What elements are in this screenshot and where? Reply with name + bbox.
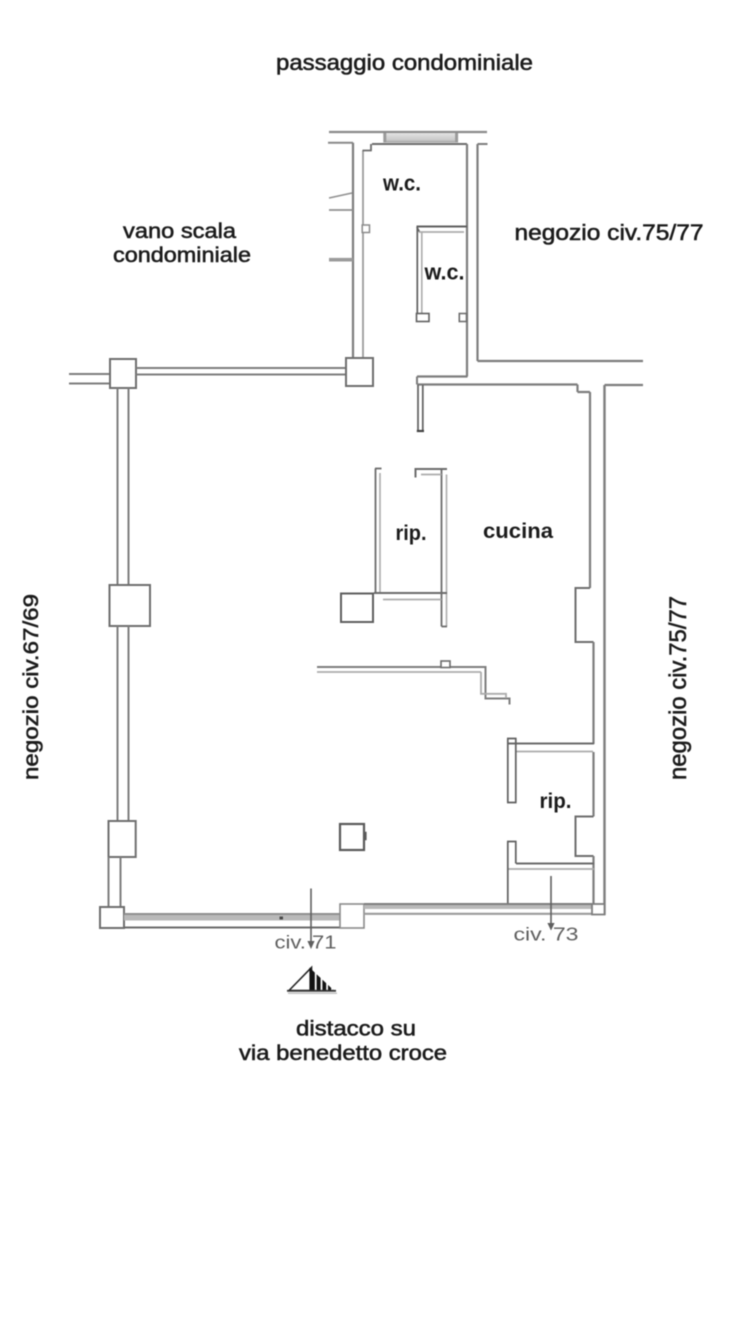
- svg-text:negozio civ.75/77: negozio civ.75/77: [515, 220, 704, 245]
- svg-text:cucina: cucina: [483, 520, 553, 543]
- svg-text:negozio civ.67/69: negozio civ.67/69: [19, 594, 43, 780]
- svg-text:civ. 71: civ. 71: [275, 933, 337, 953]
- svg-text:negozio civ.75/77: negozio civ.75/77: [665, 596, 692, 780]
- svg-text:w.c.: w.c.: [382, 171, 421, 196]
- svg-text:rip.: rip.: [540, 790, 572, 813]
- svg-text:distacco su: distacco su: [296, 1017, 416, 1041]
- svg-text:w.c.: w.c.: [424, 260, 465, 285]
- svg-text:vano scala: vano scala: [123, 219, 236, 243]
- svg-text:condominiale: condominiale: [113, 243, 251, 267]
- svg-text:rip.: rip.: [396, 522, 427, 545]
- svg-text:via benedetto croce: via benedetto croce: [239, 1041, 447, 1065]
- svg-text:passaggio condominiale: passaggio condominiale: [276, 50, 533, 75]
- svg-text:civ. 73: civ. 73: [514, 925, 579, 945]
